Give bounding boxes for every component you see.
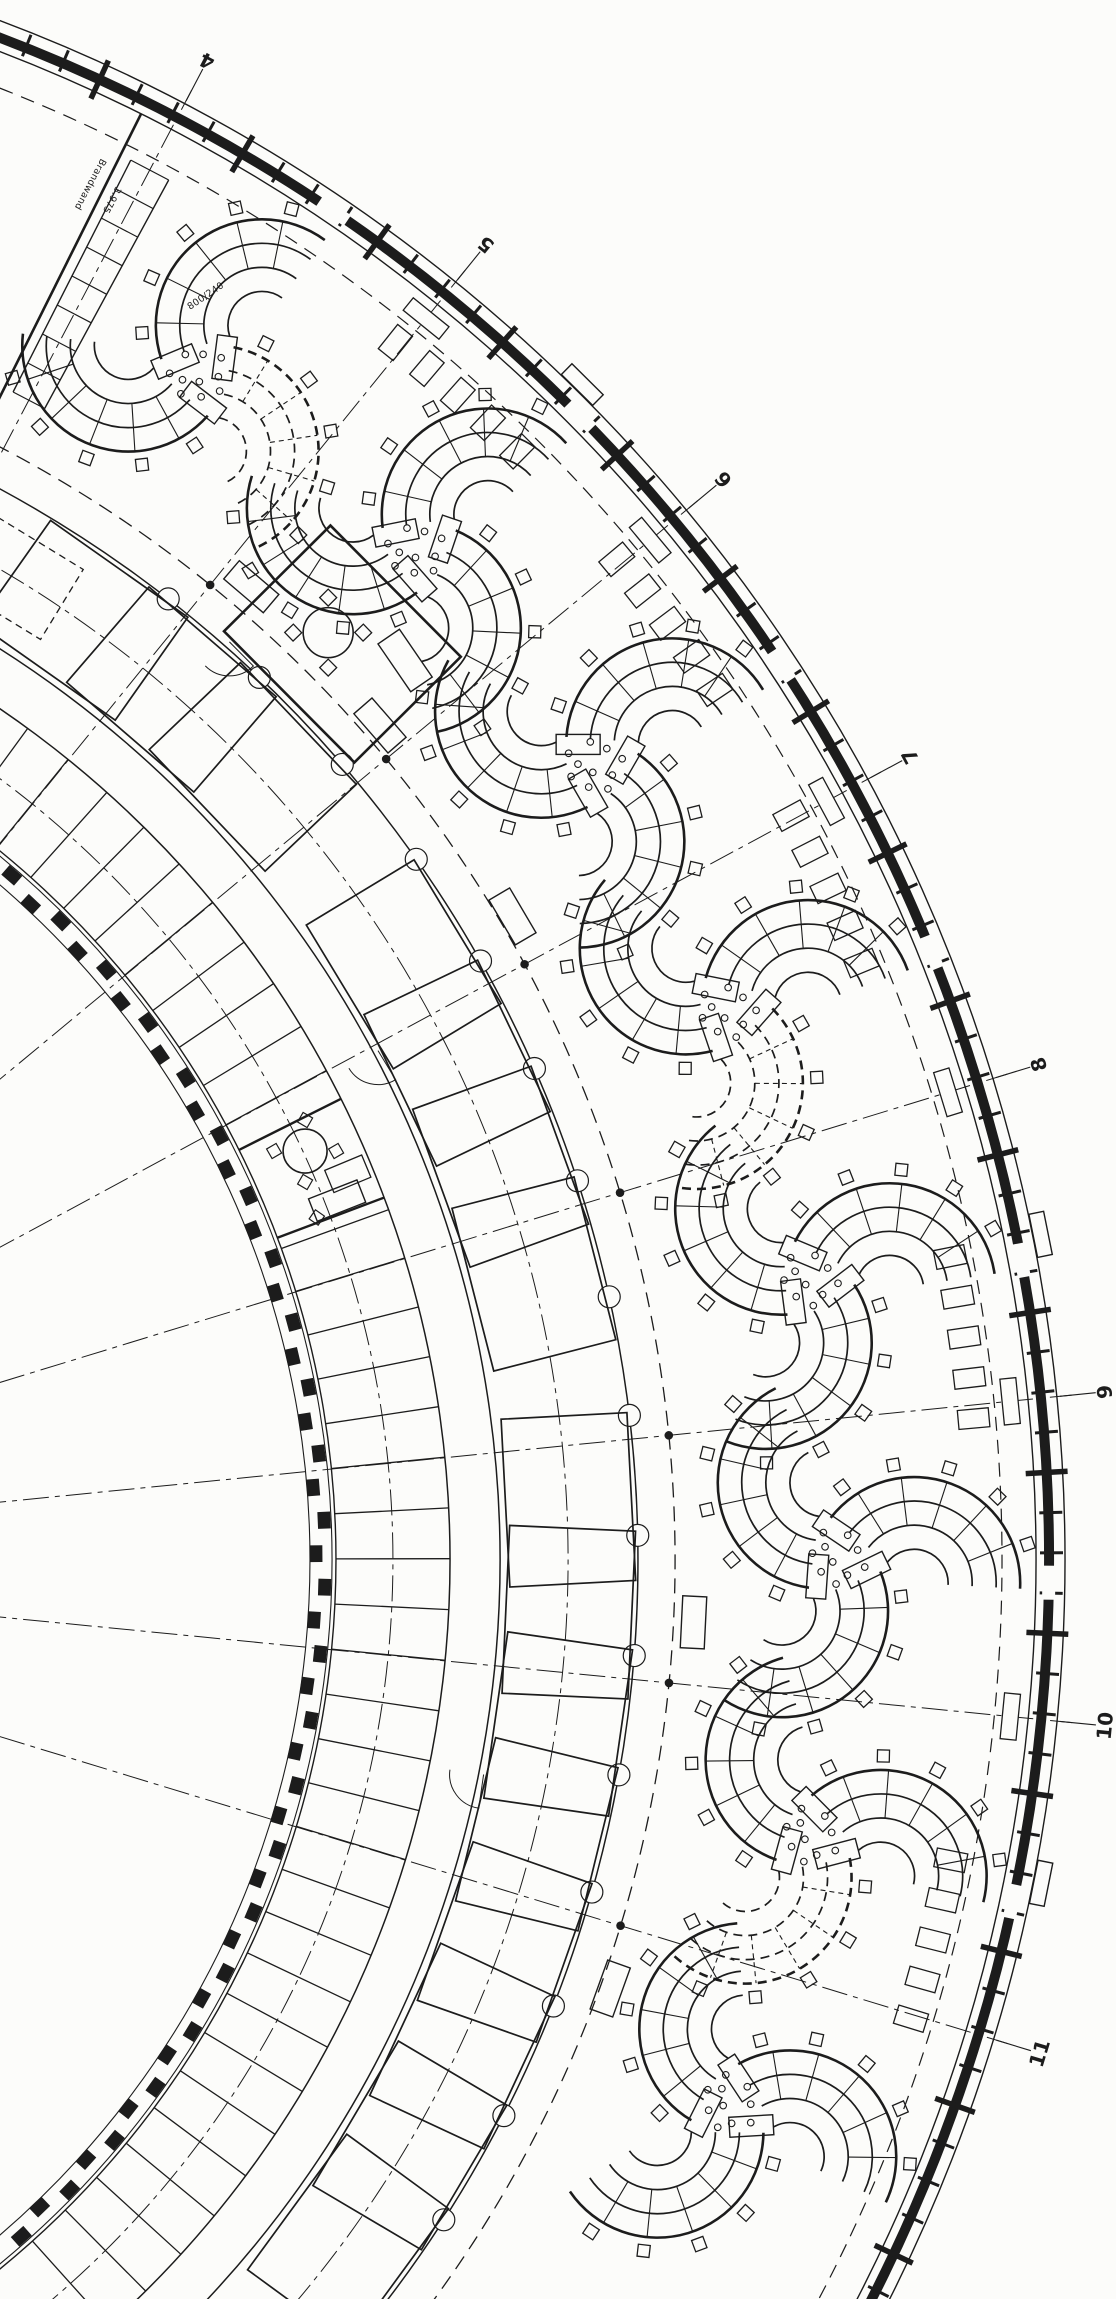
- column-dot: [665, 1679, 674, 1688]
- facade-mullion: [1035, 1431, 1058, 1433]
- plan-sheet: 4567891011 Brandwand 3.975 800/240: [0, 0, 1116, 2299]
- column-dot: [664, 1431, 673, 1440]
- door-recess-tab: [623, 1645, 645, 1667]
- door-recess-tab: [598, 1286, 620, 1308]
- inner-facade-block: [301, 1378, 316, 1396]
- inner-facade-block: [298, 1413, 312, 1431]
- inner-facade-block: [310, 1546, 322, 1562]
- column-dot: [616, 1188, 625, 1197]
- grid-marker-label: 9: [1092, 1384, 1116, 1400]
- desk-divider: [706, 1761, 754, 1762]
- floor-plan-drawing: 4567891011 Brandwand 3.975 800/240: [0, 0, 1116, 2299]
- column-dot: [382, 755, 391, 764]
- column-dot: [520, 960, 529, 969]
- door-recess-tab: [627, 1524, 649, 1546]
- paper-background: [0, 0, 1116, 2299]
- inner-facade-block: [307, 1612, 320, 1629]
- inner-facade-block: [313, 1645, 327, 1662]
- column-dot: [616, 1921, 625, 1930]
- door-recess-tab: [405, 848, 427, 870]
- inner-facade-block: [312, 1445, 326, 1462]
- facade-mullion: [1039, 1512, 1062, 1513]
- facade-mullion: [1036, 1673, 1059, 1675]
- inner-facade-block: [303, 1711, 318, 1729]
- column-dot: [206, 581, 215, 590]
- facade-pier: [1026, 1471, 1068, 1473]
- facade-window-patch: [1042, 1566, 1055, 1600]
- inner-facade-block: [318, 1512, 331, 1529]
- door-recess-tab: [248, 666, 270, 688]
- door-recess-tab: [618, 1404, 640, 1426]
- inner-facade-block: [300, 1677, 314, 1695]
- inner-facade-block: [306, 1479, 319, 1496]
- grid-marker-label: 10: [1092, 1711, 1116, 1741]
- facade-pier: [1026, 1632, 1068, 1634]
- inner-facade-block: [318, 1579, 330, 1595]
